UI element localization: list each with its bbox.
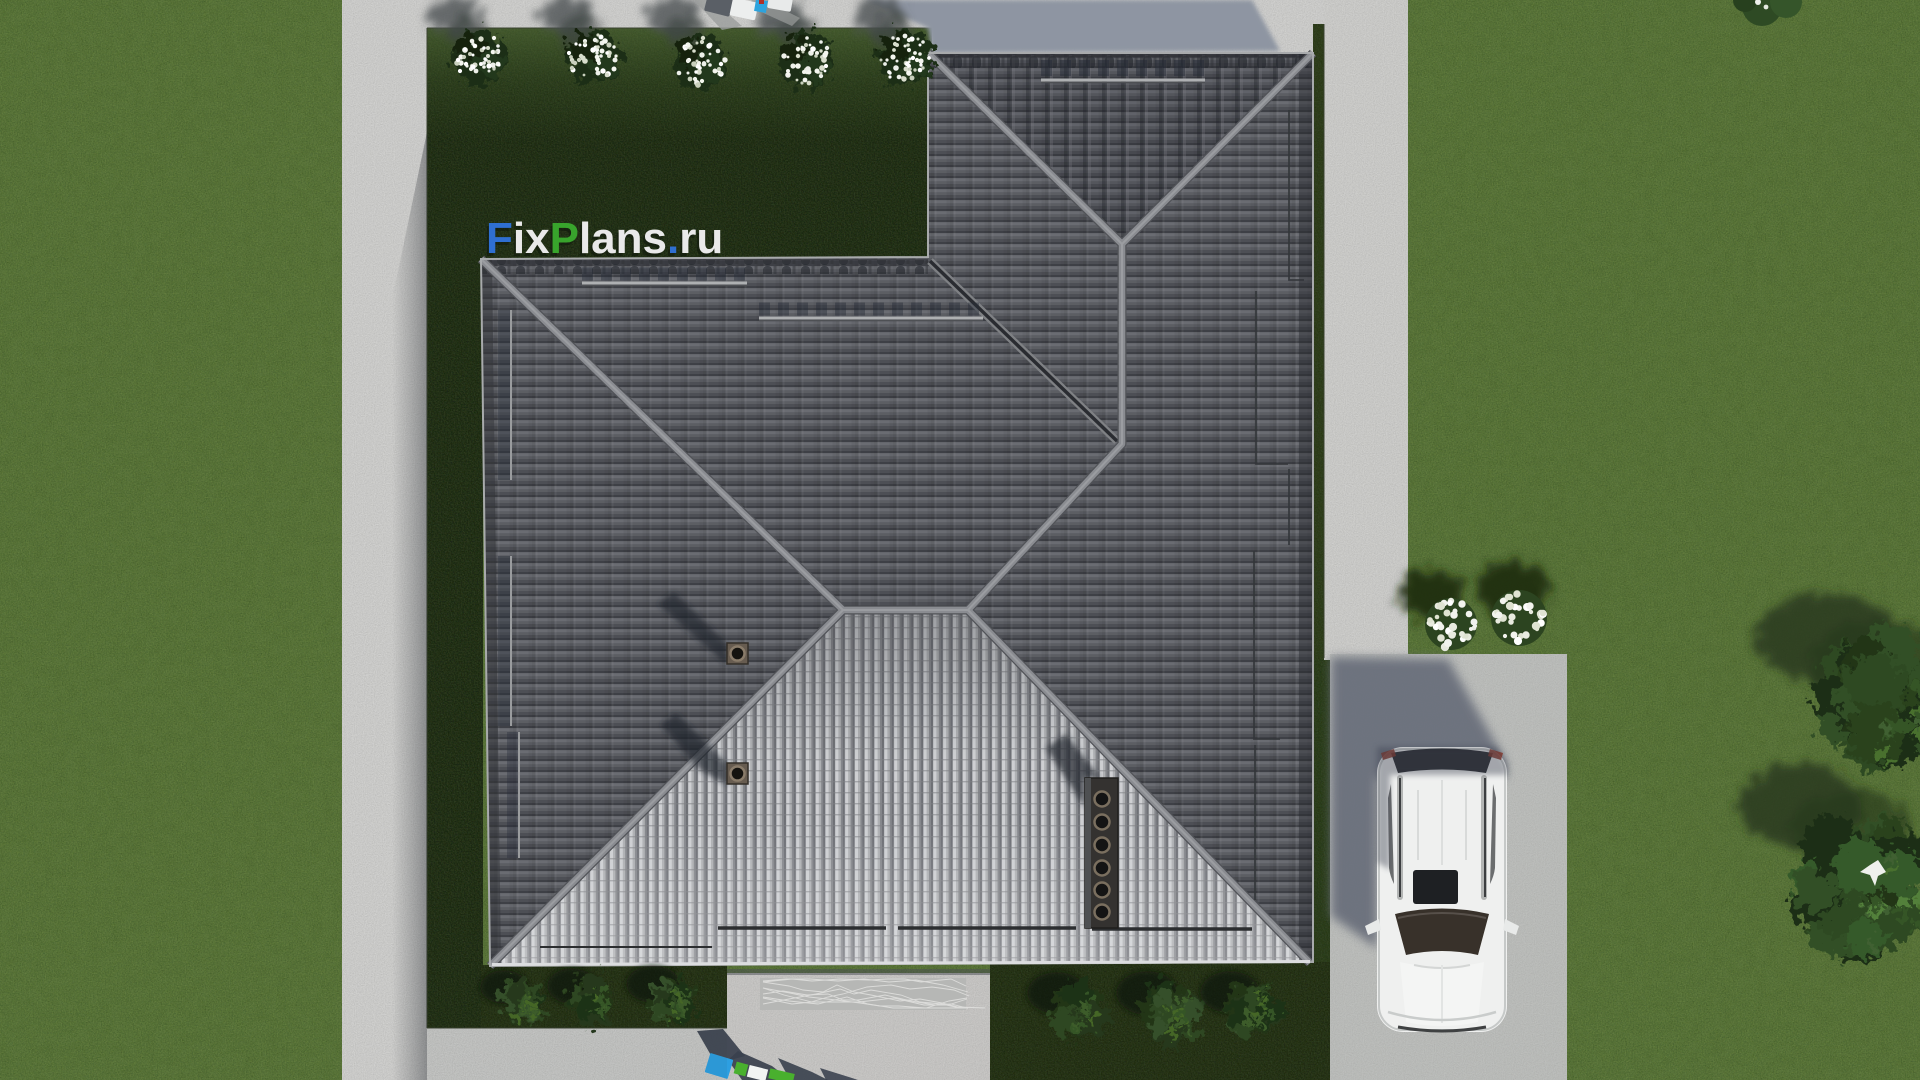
svg-text:FixPlans.ru: FixPlans.ru bbox=[486, 214, 723, 263]
